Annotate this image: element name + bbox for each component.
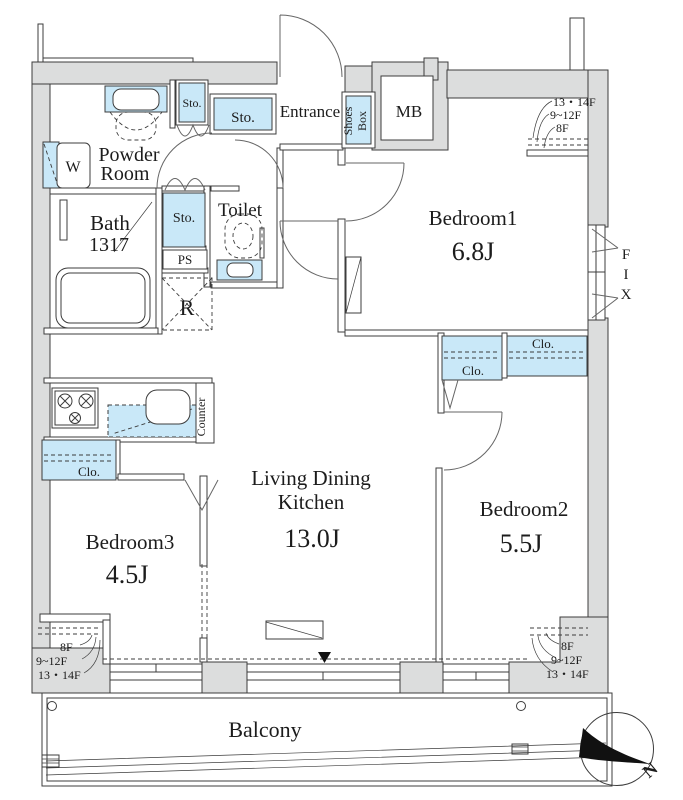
neighbor-stubs	[38, 18, 584, 70]
bath-size: 1317	[89, 234, 129, 256]
storage1-label: Sto.	[182, 96, 201, 110]
north-needle	[579, 728, 650, 764]
balcony-drain-right	[517, 702, 526, 711]
vanity-basin	[113, 89, 159, 110]
toilet-door	[235, 140, 283, 188]
fix-label-f: F	[622, 247, 630, 263]
bedroom3-label: Bedroom3	[86, 530, 175, 554]
shoes-box-label-line1: Shoes	[341, 106, 355, 135]
note-br-9-12f: 9~12F	[551, 653, 582, 667]
ldk-size: 13.0J	[284, 524, 340, 553]
closet-bedroom3-label: Clo.	[78, 464, 100, 479]
balcony	[42, 693, 612, 786]
vanity-cabinet	[116, 112, 156, 140]
floorplan-drawing: Bedroom1 6.8J Bedroom2 5.5J Bedroom3 4.5…	[0, 0, 683, 800]
ldk-label-line2: Kitchen	[278, 490, 345, 514]
wall-pier-b	[400, 662, 443, 693]
powder-label-line2: Room	[101, 163, 150, 185]
counter-label: Counter	[194, 398, 208, 437]
bedroom2-label: Bedroom2	[480, 497, 569, 521]
bedroom1-door	[346, 163, 404, 221]
bedroom2-door	[444, 412, 502, 470]
bath-label: Bath	[90, 211, 130, 235]
note-tr-9-12f: 9~12F	[550, 108, 581, 122]
stove	[52, 388, 98, 428]
kitchen-sink	[146, 390, 190, 424]
stub-top-right	[570, 18, 584, 70]
wall-right-lower	[588, 318, 608, 618]
note-tr-13-14f: 13・14F	[553, 95, 596, 109]
powder-door	[157, 133, 212, 188]
closet-bedroom2-label: Clo.	[532, 336, 554, 351]
meter-box-label: MB	[396, 102, 422, 121]
floorplan: Bedroom1 6.8J Bedroom2 5.5J Bedroom3 4.5…	[0, 0, 683, 800]
note-br-13-14f: 13・14F	[546, 667, 589, 681]
pipe-space-label: PS	[178, 252, 192, 267]
entrance-label: Entrance	[280, 102, 340, 121]
note-bl-13-14f: 13・14F	[38, 668, 81, 682]
wall-top-left-band	[32, 62, 277, 84]
wall-top-right-band	[447, 70, 608, 98]
compass	[579, 713, 654, 786]
stub-top-left-h	[43, 58, 193, 62]
bathtub-outer	[56, 268, 150, 328]
toilet-bowl	[233, 223, 253, 249]
note-tr-8f: 8F	[556, 121, 569, 135]
entrance-door	[280, 15, 342, 77]
stub-top-left-v	[38, 24, 43, 62]
bedroom2-size: 5.5J	[500, 529, 543, 558]
bath-ledge	[60, 200, 67, 240]
storage1-bifold	[177, 125, 209, 136]
shoes-box-label-line2: Box	[355, 111, 369, 131]
fix-label-i: I	[624, 267, 629, 283]
storage2-label: Sto.	[231, 110, 255, 126]
closet-ldk-label: Clo.	[462, 363, 484, 378]
toilet-basin	[227, 263, 253, 277]
wall-pier-a	[202, 662, 247, 693]
note-br-8f: 8F	[561, 639, 574, 653]
note-bl-9-12f: 9~12F	[36, 654, 67, 668]
balcony-drain-left	[48, 702, 57, 711]
washer-label: W	[65, 159, 81, 176]
balcony-label: Balcony	[228, 717, 301, 742]
entrance-step	[280, 144, 343, 150]
opening-marker	[318, 652, 331, 663]
wall-right-upper	[588, 70, 608, 227]
storage3-label: Sto.	[173, 211, 195, 226]
bedroom3-size: 4.5J	[106, 560, 149, 589]
bedroom3-sliding-door	[202, 564, 207, 640]
wall-top-shoes	[345, 66, 375, 95]
vanity-swing	[110, 112, 162, 130]
bedroom1-label: Bedroom1	[429, 206, 518, 230]
fix-label-x: X	[621, 287, 632, 303]
toilet-label: Toilet	[218, 200, 263, 221]
note-bl-8f: 8F	[60, 640, 73, 654]
hall-ldk-door	[280, 221, 338, 279]
refrigerator-label: R	[180, 295, 195, 320]
ldk-label-line1: Living Dining	[251, 466, 371, 490]
balcony-railing	[46, 743, 606, 775]
bedroom1-size: 6.8J	[452, 237, 495, 266]
